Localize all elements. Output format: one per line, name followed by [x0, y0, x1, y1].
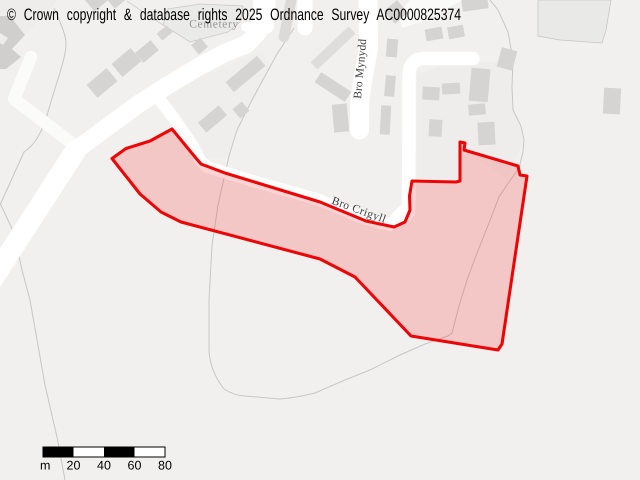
svg-text:80: 80 — [158, 459, 172, 473]
svg-text:20: 20 — [67, 459, 81, 473]
svg-text:© Crown copyright & database r: © Crown copyright & database rights 2025… — [7, 6, 461, 24]
svg-text:60: 60 — [128, 459, 142, 473]
svg-text:m: m — [40, 459, 50, 473]
svg-text:40: 40 — [97, 459, 111, 473]
